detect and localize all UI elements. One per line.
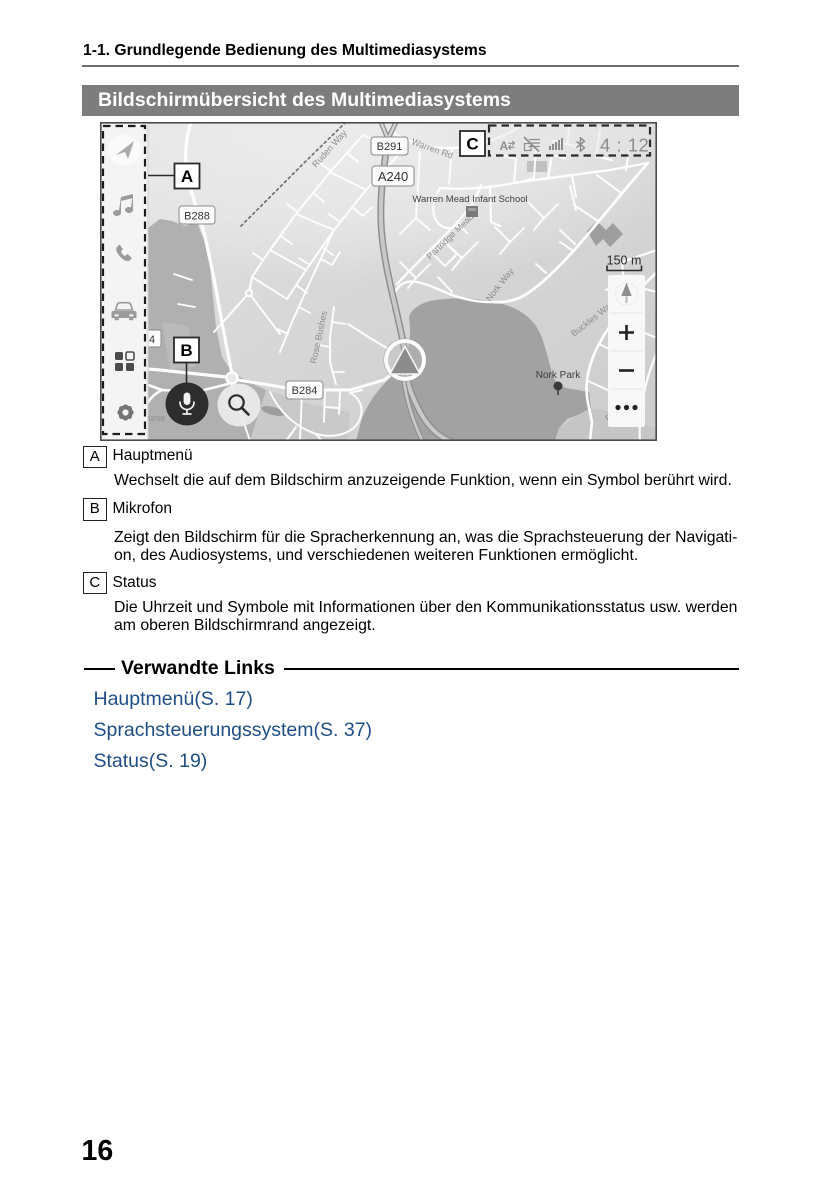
svg-text:B288: B288 bbox=[184, 210, 210, 222]
svg-text:A: A bbox=[500, 139, 509, 153]
svg-text:Warren Mead Infant School: Warren Mead Infant School bbox=[412, 194, 527, 205]
svg-text:B284: B284 bbox=[292, 385, 318, 397]
svg-text:B: B bbox=[180, 341, 192, 360]
svg-text:urse: urse bbox=[148, 413, 166, 423]
svg-text:4 : 12: 4 : 12 bbox=[600, 134, 649, 155]
svg-text:A: A bbox=[181, 167, 193, 186]
svg-text:150 m: 150 m bbox=[607, 253, 642, 267]
svg-text:C: C bbox=[466, 134, 478, 153]
svg-text:B291: B291 bbox=[377, 141, 403, 153]
svg-text:Nork Park: Nork Park bbox=[536, 370, 581, 381]
svg-text:A240: A240 bbox=[378, 169, 408, 184]
svg-text:4: 4 bbox=[149, 334, 155, 346]
